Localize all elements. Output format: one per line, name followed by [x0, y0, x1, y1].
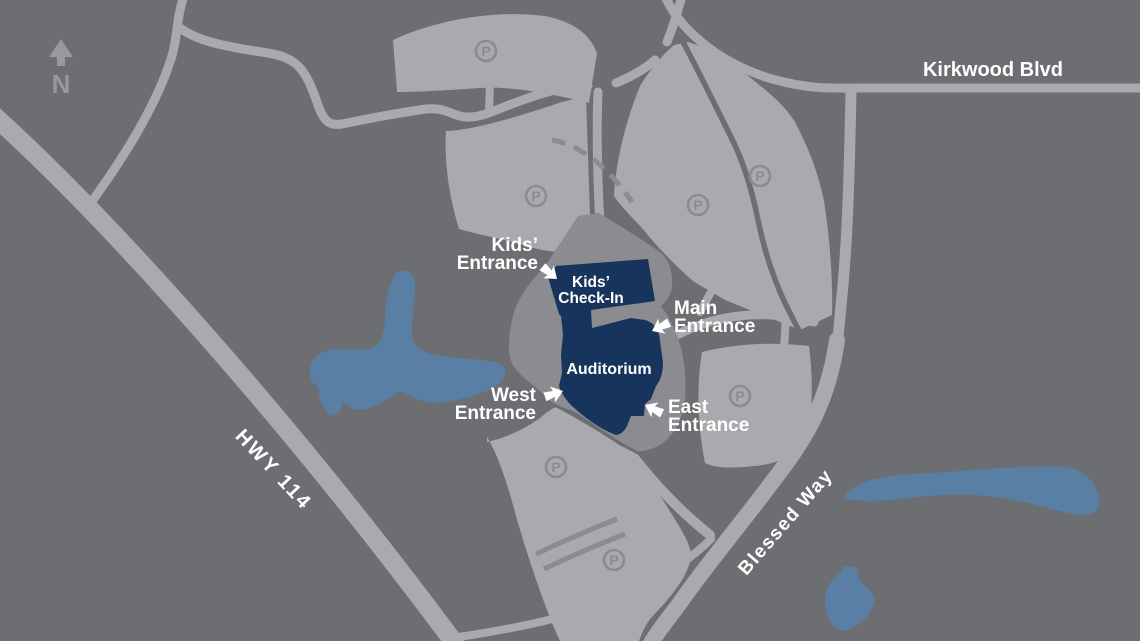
svg-text:P: P [755, 168, 764, 184]
svg-text:Kids’: Kids’ [572, 274, 610, 291]
svg-text:Entrance: Entrance [668, 415, 749, 436]
svg-text:Entrance: Entrance [674, 316, 755, 337]
svg-text:Entrance: Entrance [457, 253, 538, 274]
svg-text:Check-In: Check-In [558, 290, 623, 307]
svg-text:P: P [693, 197, 702, 213]
svg-text:Auditorium: Auditorium [566, 361, 651, 378]
svg-text:P: P [735, 388, 744, 404]
svg-text:Kirkwood Blvd: Kirkwood Blvd [923, 59, 1063, 81]
svg-text:P: P [551, 459, 560, 475]
svg-text:P: P [609, 552, 618, 568]
svg-text:P: P [481, 43, 490, 59]
svg-text:Entrance: Entrance [455, 403, 536, 424]
svg-text:P: P [531, 188, 540, 204]
svg-text:N: N [52, 69, 71, 99]
